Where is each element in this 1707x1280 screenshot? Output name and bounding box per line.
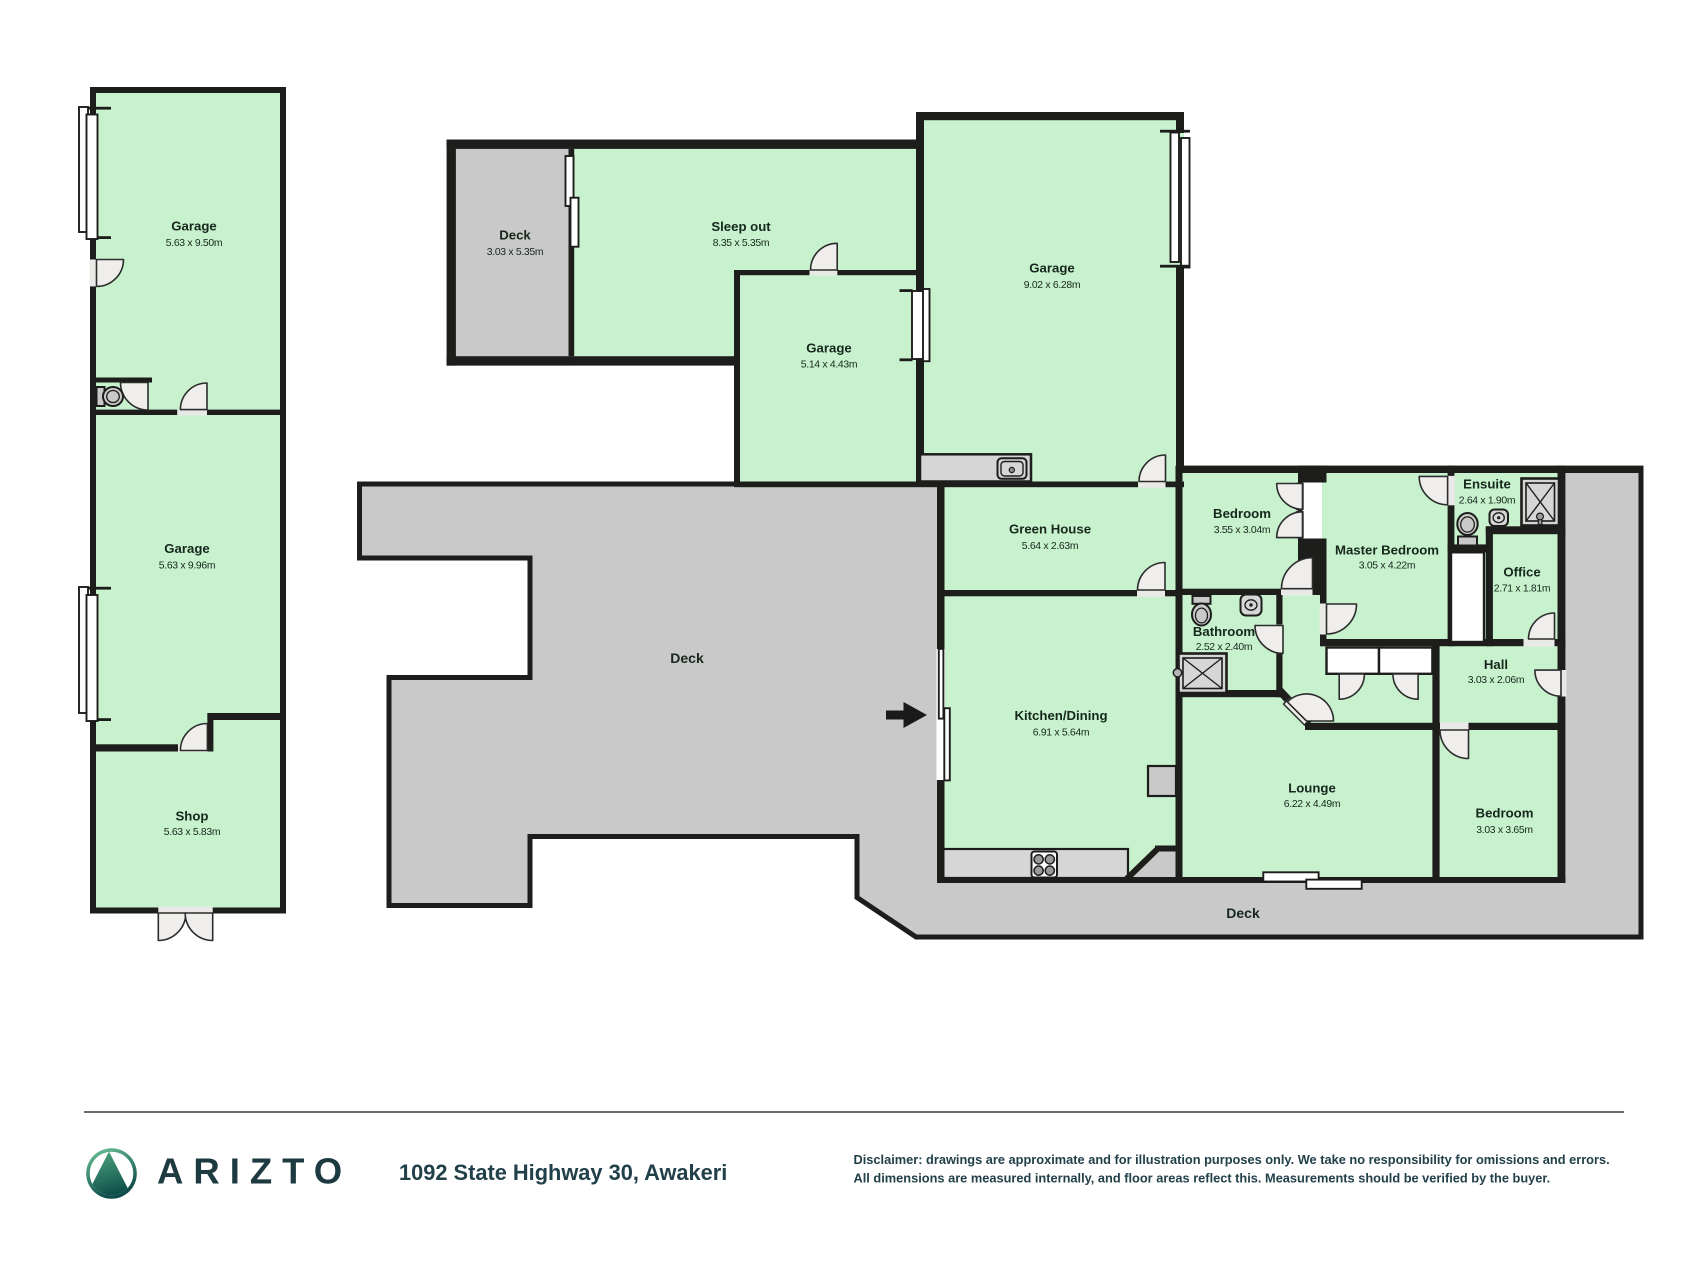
svg-text:5.64 x 2.63m: 5.64 x 2.63m (1022, 541, 1078, 552)
svg-text:3.03 x 3.65m: 3.03 x 3.65m (1476, 825, 1532, 836)
svg-text:Garage: Garage (806, 341, 851, 356)
svg-text:5.63 x 9.50m: 5.63 x 9.50m (166, 238, 222, 249)
svg-text:6.91 x 5.64m: 6.91 x 5.64m (1033, 728, 1089, 739)
svg-text:Bathroom: Bathroom (1193, 624, 1255, 639)
svg-text:Lounge: Lounge (1288, 781, 1336, 796)
svg-text:9.02 x 6.28m: 9.02 x 6.28m (1024, 280, 1080, 291)
svg-text:3.03 x 2.06m: 3.03 x 2.06m (1468, 675, 1524, 686)
svg-text:Garage: Garage (1029, 261, 1074, 276)
svg-text:6.22 x 4.49m: 6.22 x 4.49m (1284, 799, 1340, 810)
svg-text:Bedroom: Bedroom (1213, 506, 1271, 521)
svg-text:3.03 x 5.35m: 3.03 x 5.35m (487, 247, 543, 258)
svg-text:5.14 x 4.43m: 5.14 x 4.43m (801, 360, 857, 371)
svg-text:2.52 x 2.40m: 2.52 x 2.40m (1196, 642, 1252, 653)
svg-text:Disclaimer: drawings are appro: Disclaimer: drawings are approximate and… (854, 1152, 1610, 1167)
svg-text:2.64 x 1.90m: 2.64 x 1.90m (1459, 496, 1515, 507)
svg-text:Green House: Green House (1009, 522, 1091, 537)
svg-text:Bedroom: Bedroom (1476, 806, 1534, 821)
svg-text:Deck: Deck (499, 228, 531, 243)
svg-text:Kitchen/Dining: Kitchen/Dining (1014, 708, 1107, 723)
svg-text:5.63 x 9.96m: 5.63 x 9.96m (159, 561, 215, 572)
svg-text:Garage: Garage (164, 541, 209, 556)
svg-text:Sleep out: Sleep out (711, 219, 771, 234)
svg-text:8.35 x 5.35m: 8.35 x 5.35m (713, 238, 769, 249)
svg-text:2.71 x 1.81m: 2.71 x 1.81m (1494, 584, 1550, 595)
svg-text:3.05 x 4.22m: 3.05 x 4.22m (1359, 561, 1415, 572)
svg-text:Deck: Deck (1226, 905, 1260, 921)
svg-text:Shop: Shop (176, 809, 209, 824)
svg-text:1092 State Highway 30, Awakeri: 1092 State Highway 30, Awakeri (399, 1160, 727, 1185)
svg-text:Ensuite: Ensuite (1463, 477, 1511, 492)
svg-text:All dimensions are measured in: All dimensions are measured internally, … (854, 1170, 1551, 1185)
svg-text:Garage: Garage (171, 219, 216, 234)
svg-text:Master Bedroom: Master Bedroom (1335, 543, 1439, 558)
svg-text:3.55 x 3.04m: 3.55 x 3.04m (1214, 525, 1270, 536)
svg-text:Office: Office (1503, 565, 1540, 580)
svg-text:5.63 x 5.83m: 5.63 x 5.83m (164, 827, 220, 838)
svg-text:Hall: Hall (1484, 657, 1508, 672)
svg-text:ARIZTO: ARIZTO (157, 1151, 352, 1192)
svg-text:Deck: Deck (670, 650, 704, 666)
